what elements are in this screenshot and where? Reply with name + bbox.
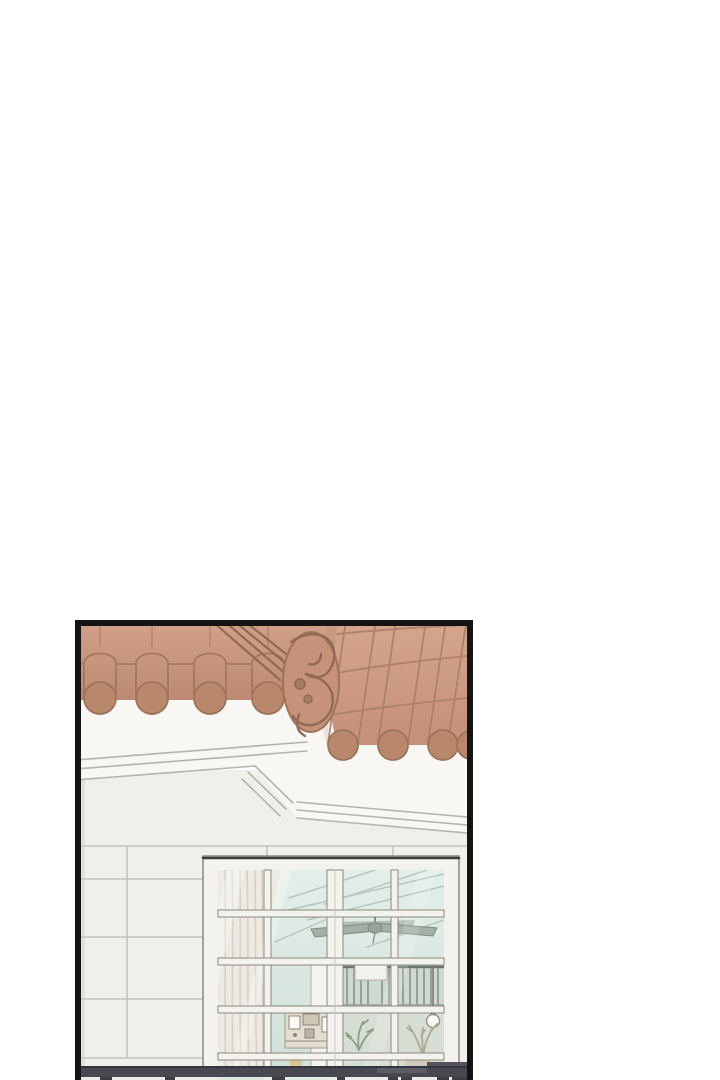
window <box>179 856 459 1080</box>
webtoon-page <box>0 0 720 1080</box>
comic-panel <box>75 620 473 1080</box>
roof-right <box>319 620 473 760</box>
panel-illustration <box>75 620 473 1080</box>
